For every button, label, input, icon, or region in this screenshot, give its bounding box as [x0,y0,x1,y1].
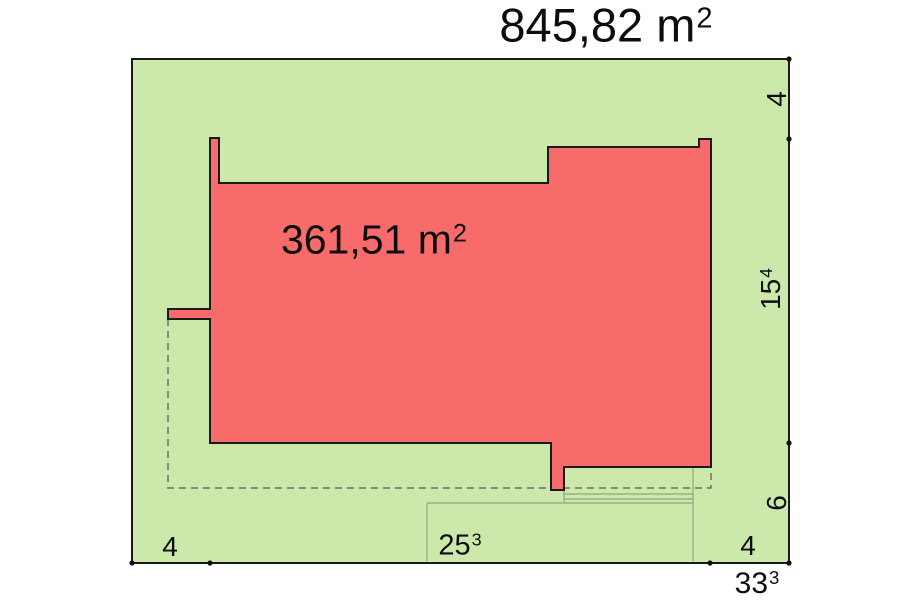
dimension-tick [129,560,134,565]
plot-area-superscript: 2 [696,3,712,35]
dim-bottom-middle-superscript: 3 [472,530,482,550]
dim-bottom-middle-value: 25 [438,530,470,562]
building-footprint [168,138,711,490]
dimension-tick [786,136,791,141]
building-area-value: 361,51 m [281,217,452,263]
dim-bottom-total-value: 33 [735,567,768,600]
dimension-tick [207,560,212,565]
dim-right-middle-value: 15 [755,279,786,310]
dim-bottom-middle: 253 [438,532,481,561]
dimension-tick [786,440,791,445]
dim-bottom-right: 4 [740,532,756,560]
building-area-label: 361,51 m2 [281,220,467,261]
dim-bottom-total: 333 [735,569,780,599]
site-plan-page: 845,82 m2 361,51 m2 4 253 4 333 4 154 6 [0,0,900,600]
dim-right-top: 4 [763,91,791,107]
plot-area-label: 845,82 m2 [499,2,712,49]
building-area-superscript: 2 [453,219,467,247]
dim-bottom-total-superscript: 3 [769,567,779,588]
dimension-tick [707,560,712,565]
dim-right-bottom: 6 [763,495,791,511]
dimension-tick [786,560,791,565]
dim-right-middle-superscript: 4 [756,268,776,278]
dimension-tick [786,56,791,61]
plot-area-value: 845,82 m [499,0,695,52]
dim-bottom-left: 4 [162,533,178,561]
dim-right-middle: 154 [757,268,785,310]
